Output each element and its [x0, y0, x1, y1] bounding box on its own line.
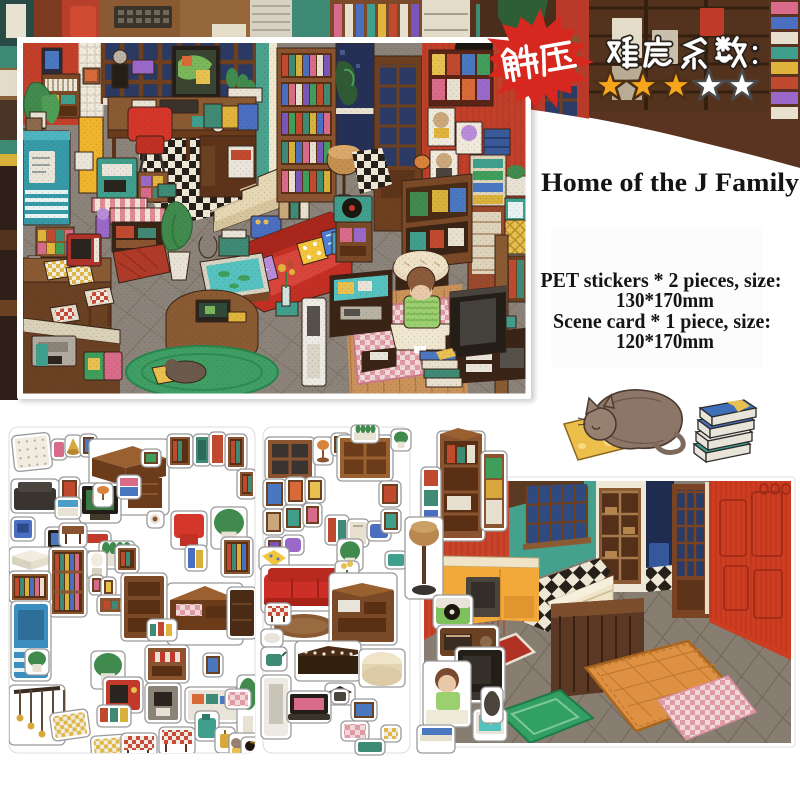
svg-text:Home of the J Family: Home of the J Family [541, 168, 799, 197]
svg-text:120*170mm: 120*170mm [616, 329, 714, 353]
